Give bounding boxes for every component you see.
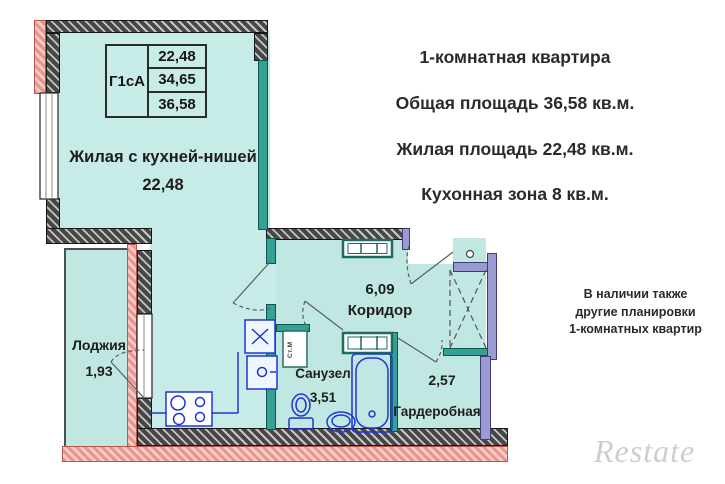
wall-right-upper — [487, 253, 497, 360]
type-area-total: 36,58 — [149, 93, 205, 116]
corridor-area: 6,09 — [340, 281, 420, 298]
kitchen-niche-floor — [150, 230, 270, 428]
partition-main-right — [258, 60, 268, 230]
type-area-living: 22,48 — [149, 46, 205, 69]
availability-line-3: 1-комнатных квартир — [543, 321, 725, 339]
bathroom-label: Санузел — [288, 366, 358, 382]
floor-plan: Г1сА 22,48 34,65 36,58 Жилая с кухней-ни… — [0, 0, 510, 484]
corridor-label: Коридор — [332, 302, 428, 319]
availability-line-1: В наличии также — [543, 286, 725, 304]
wall-balcony-lower — [137, 398, 152, 430]
partition-door-upper — [266, 238, 276, 264]
living-area-line: Жилая площадь 22,48 кв.м. — [355, 139, 675, 160]
total-area-line: Общая площадь 36,58 кв.м. — [355, 93, 675, 114]
wall-balcony-upper — [137, 250, 152, 314]
wall-bottom-band — [137, 428, 508, 446]
wall-top — [46, 20, 268, 33]
bathroom-area: 3,51 — [288, 390, 358, 406]
partition-bathroom-left — [266, 332, 276, 430]
type-table: Г1сА 22,48 34,65 36,58 — [105, 44, 207, 118]
kitchen-zone-line: Кухонная зона 8 кв.м. — [355, 184, 675, 205]
type-area-partial: 34,65 — [149, 69, 205, 92]
loggia-label: Лоджия — [60, 337, 138, 353]
apartment-title: 1-комнатная квартира — [360, 47, 670, 68]
wardrobe-area: 2,57 — [412, 372, 472, 388]
living-room-area: 22,48 — [53, 176, 273, 195]
loggia-area: 1,93 — [60, 363, 138, 379]
washing-machine-label: Ст.М — [285, 334, 296, 366]
wall-pink-left-top — [34, 20, 46, 94]
wall-entrance-pier — [402, 228, 410, 250]
entrance-opening — [408, 222, 453, 264]
wardrobe-label: Гардеробная — [384, 404, 490, 420]
availability-line-2: другие планировки — [543, 304, 725, 322]
watermark: Restate — [594, 433, 725, 470]
floor-plan-page: Г1сА 22,48 34,65 36,58 Жилая с кухней-ни… — [0, 0, 725, 484]
wall-left-upper — [46, 33, 60, 93]
wall-bottom-left — [46, 228, 152, 244]
wall-pink-bottom-band — [62, 446, 508, 462]
partition-bathroom-top — [276, 324, 310, 332]
wall-top-corner — [254, 33, 268, 61]
partition-wardrobe-top — [443, 348, 488, 356]
availability-note: В наличии также другие планировки 1-комн… — [543, 286, 725, 339]
wall-left-lower — [46, 198, 60, 232]
partition-door-lower — [266, 304, 276, 332]
wall-wardrobe-right — [480, 356, 491, 440]
wall-corridor-top — [266, 228, 408, 240]
living-room-label: Жилая с кухней-нишей — [53, 148, 273, 167]
type-code: Г1сА — [107, 46, 149, 116]
